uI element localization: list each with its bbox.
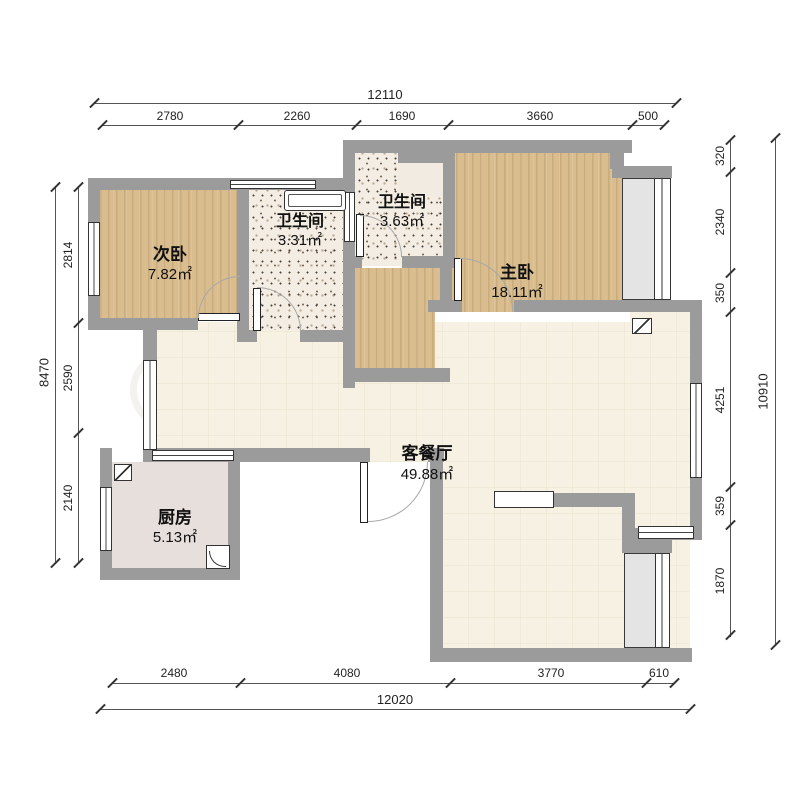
dimension-line (94, 103, 676, 104)
wall (228, 448, 370, 462)
bay-window-sill (624, 553, 657, 648)
room-area-master-bedroom: 18.11㎡ (457, 281, 577, 302)
dim-bottom-4: 610 (629, 666, 689, 680)
wall (88, 318, 198, 330)
dimension-line (78, 187, 79, 564)
dim-right-total: 10910 (756, 362, 771, 422)
wall (343, 140, 632, 153)
wall (398, 153, 444, 163)
flue-symbol (114, 464, 132, 481)
window (690, 383, 702, 478)
wall (612, 166, 672, 178)
dim-top-1: 2780 (130, 109, 210, 123)
room-area-living-room: 49.88㎡ (377, 463, 477, 484)
window (230, 180, 316, 189)
window (100, 487, 112, 551)
vent-symbol (632, 318, 652, 334)
dim-top-4: 3660 (500, 109, 580, 123)
dim-bottom-1: 2480 (134, 666, 214, 680)
dimension-line (55, 187, 56, 564)
dim-bottom-2: 4080 (307, 666, 387, 680)
room-label-bathroom1: 卫生间 (250, 207, 350, 231)
wall (343, 368, 450, 382)
dimension-line (100, 709, 690, 710)
dimension-line (102, 125, 664, 126)
wall (622, 540, 672, 553)
dim-bottom-total: 12020 (355, 692, 435, 707)
window (88, 222, 100, 296)
dim-right-3: 350 (713, 263, 727, 323)
dim-left-total: 8470 (37, 343, 52, 403)
dim-bottom-3: 3770 (511, 666, 591, 680)
pass-through-window (494, 491, 554, 508)
bay-window (655, 553, 670, 648)
room-area-bathroom1: 3.31㎡ (250, 229, 350, 250)
dim-right-2: 2340 (713, 192, 727, 252)
window (143, 360, 157, 450)
bay-window (654, 178, 671, 300)
wall (343, 256, 362, 268)
window (638, 526, 694, 539)
room-area-kitchen: 5.13㎡ (125, 526, 225, 547)
door-leaf (360, 462, 368, 523)
dim-top-2: 2260 (257, 109, 337, 123)
wall (237, 330, 257, 342)
room-area-bathroom2: 3.63㎡ (352, 210, 452, 231)
room-label-second-bedroom: 次卧 (120, 240, 220, 265)
floor-plan: 次卧 7.82㎡ 卫生间 3.31㎡ 卫生间 3.63㎡ 主卧 18.11㎡ 客… (0, 0, 800, 800)
dim-right-4: 4251 (713, 370, 727, 430)
dimension-line (730, 140, 731, 637)
dimension-line (775, 138, 776, 645)
dim-top-3: 1690 (362, 109, 442, 123)
wall (430, 460, 443, 662)
wall (622, 300, 702, 312)
room-label-kitchen: 厨房 (125, 503, 225, 528)
window (152, 450, 234, 461)
dim-left-2: 2590 (61, 348, 75, 408)
dim-top-total: 12110 (345, 87, 425, 102)
dim-top-5: 500 (618, 109, 678, 123)
dimension-line (112, 683, 674, 684)
dim-right-6: 1870 (713, 551, 727, 611)
room-label-master-bedroom: 主卧 (467, 258, 567, 283)
room-label-living-room: 客餐厅 (377, 439, 477, 464)
flue-symbol (206, 545, 230, 569)
room-label-bathroom2: 卫生间 (352, 188, 452, 212)
room-area-second-bedroom: 7.82㎡ (120, 263, 220, 284)
wall (100, 568, 240, 580)
dim-right-1: 320 (713, 126, 727, 186)
dim-left-3: 2140 (61, 468, 75, 528)
wall (402, 256, 445, 268)
dim-right-5: 359 (713, 476, 727, 536)
wall (430, 648, 692, 662)
dim-left-1: 2814 (61, 225, 75, 285)
wall (300, 330, 343, 342)
bay-window-sill (622, 178, 656, 300)
